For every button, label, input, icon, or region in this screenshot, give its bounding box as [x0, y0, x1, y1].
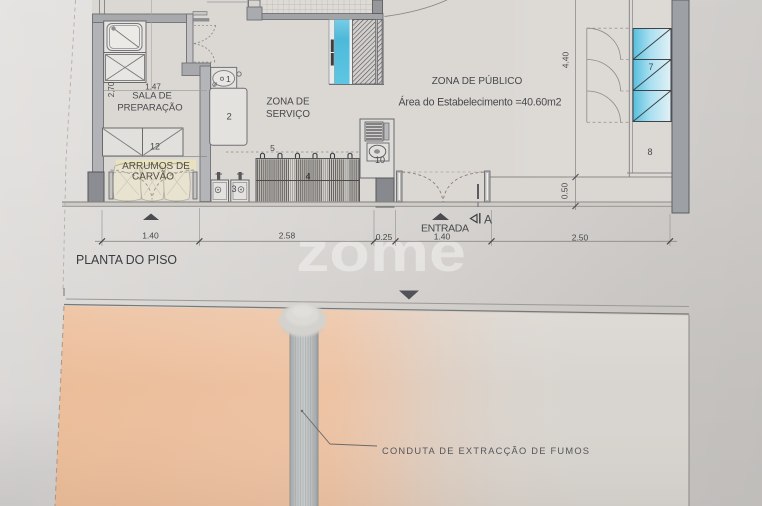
- svg-text:4.40: 4.40: [561, 51, 571, 68]
- svg-text:ZONA DE PÚBLICO: ZONA DE PÚBLICO: [432, 74, 523, 87]
- svg-text:ZONA DE: ZONA DE: [266, 97, 309, 108]
- svg-text:1: 1: [226, 74, 231, 84]
- svg-text:Área do Estabelecimento =40.60: Área do Estabelecimento =40.60m2: [399, 96, 562, 109]
- svg-text:0.25: 0.25: [376, 232, 393, 242]
- svg-text:2: 2: [227, 112, 232, 123]
- svg-text:A: A: [484, 213, 492, 227]
- svg-text:1.40: 1.40: [142, 231, 159, 241]
- svg-text:0.50: 0.50: [560, 182, 570, 199]
- svg-text:ARRUMOS DE: ARRUMOS DE: [122, 161, 190, 172]
- svg-text:2.50: 2.50: [572, 233, 589, 243]
- svg-text:SALA DE: SALA DE: [132, 91, 172, 102]
- svg-text:2.58: 2.58: [279, 231, 296, 241]
- svg-text:SERVIÇO: SERVIÇO: [266, 109, 310, 120]
- svg-text:3: 3: [232, 184, 237, 194]
- svg-text:CONDUTA DE EXTRACÇÃO DE FUMOS: CONDUTA DE EXTRACÇÃO DE FUMOS: [382, 446, 589, 456]
- svg-text:4: 4: [305, 172, 310, 182]
- svg-text:10: 10: [375, 155, 385, 165]
- svg-text:CARVÃO: CARVÃO: [132, 170, 174, 183]
- svg-text:8: 8: [647, 147, 652, 157]
- svg-text:2,70: 2,70: [107, 81, 116, 97]
- svg-text:7: 7: [648, 62, 653, 72]
- svg-text:PLANTA DO PISO: PLANTA DO PISO: [76, 252, 177, 267]
- svg-text:12: 12: [150, 142, 160, 152]
- svg-text:5: 5: [270, 143, 275, 153]
- svg-text:PREPARAÇÃO: PREPARAÇÃO: [117, 103, 182, 114]
- svg-text:ENTRADA: ENTRADA: [421, 223, 469, 235]
